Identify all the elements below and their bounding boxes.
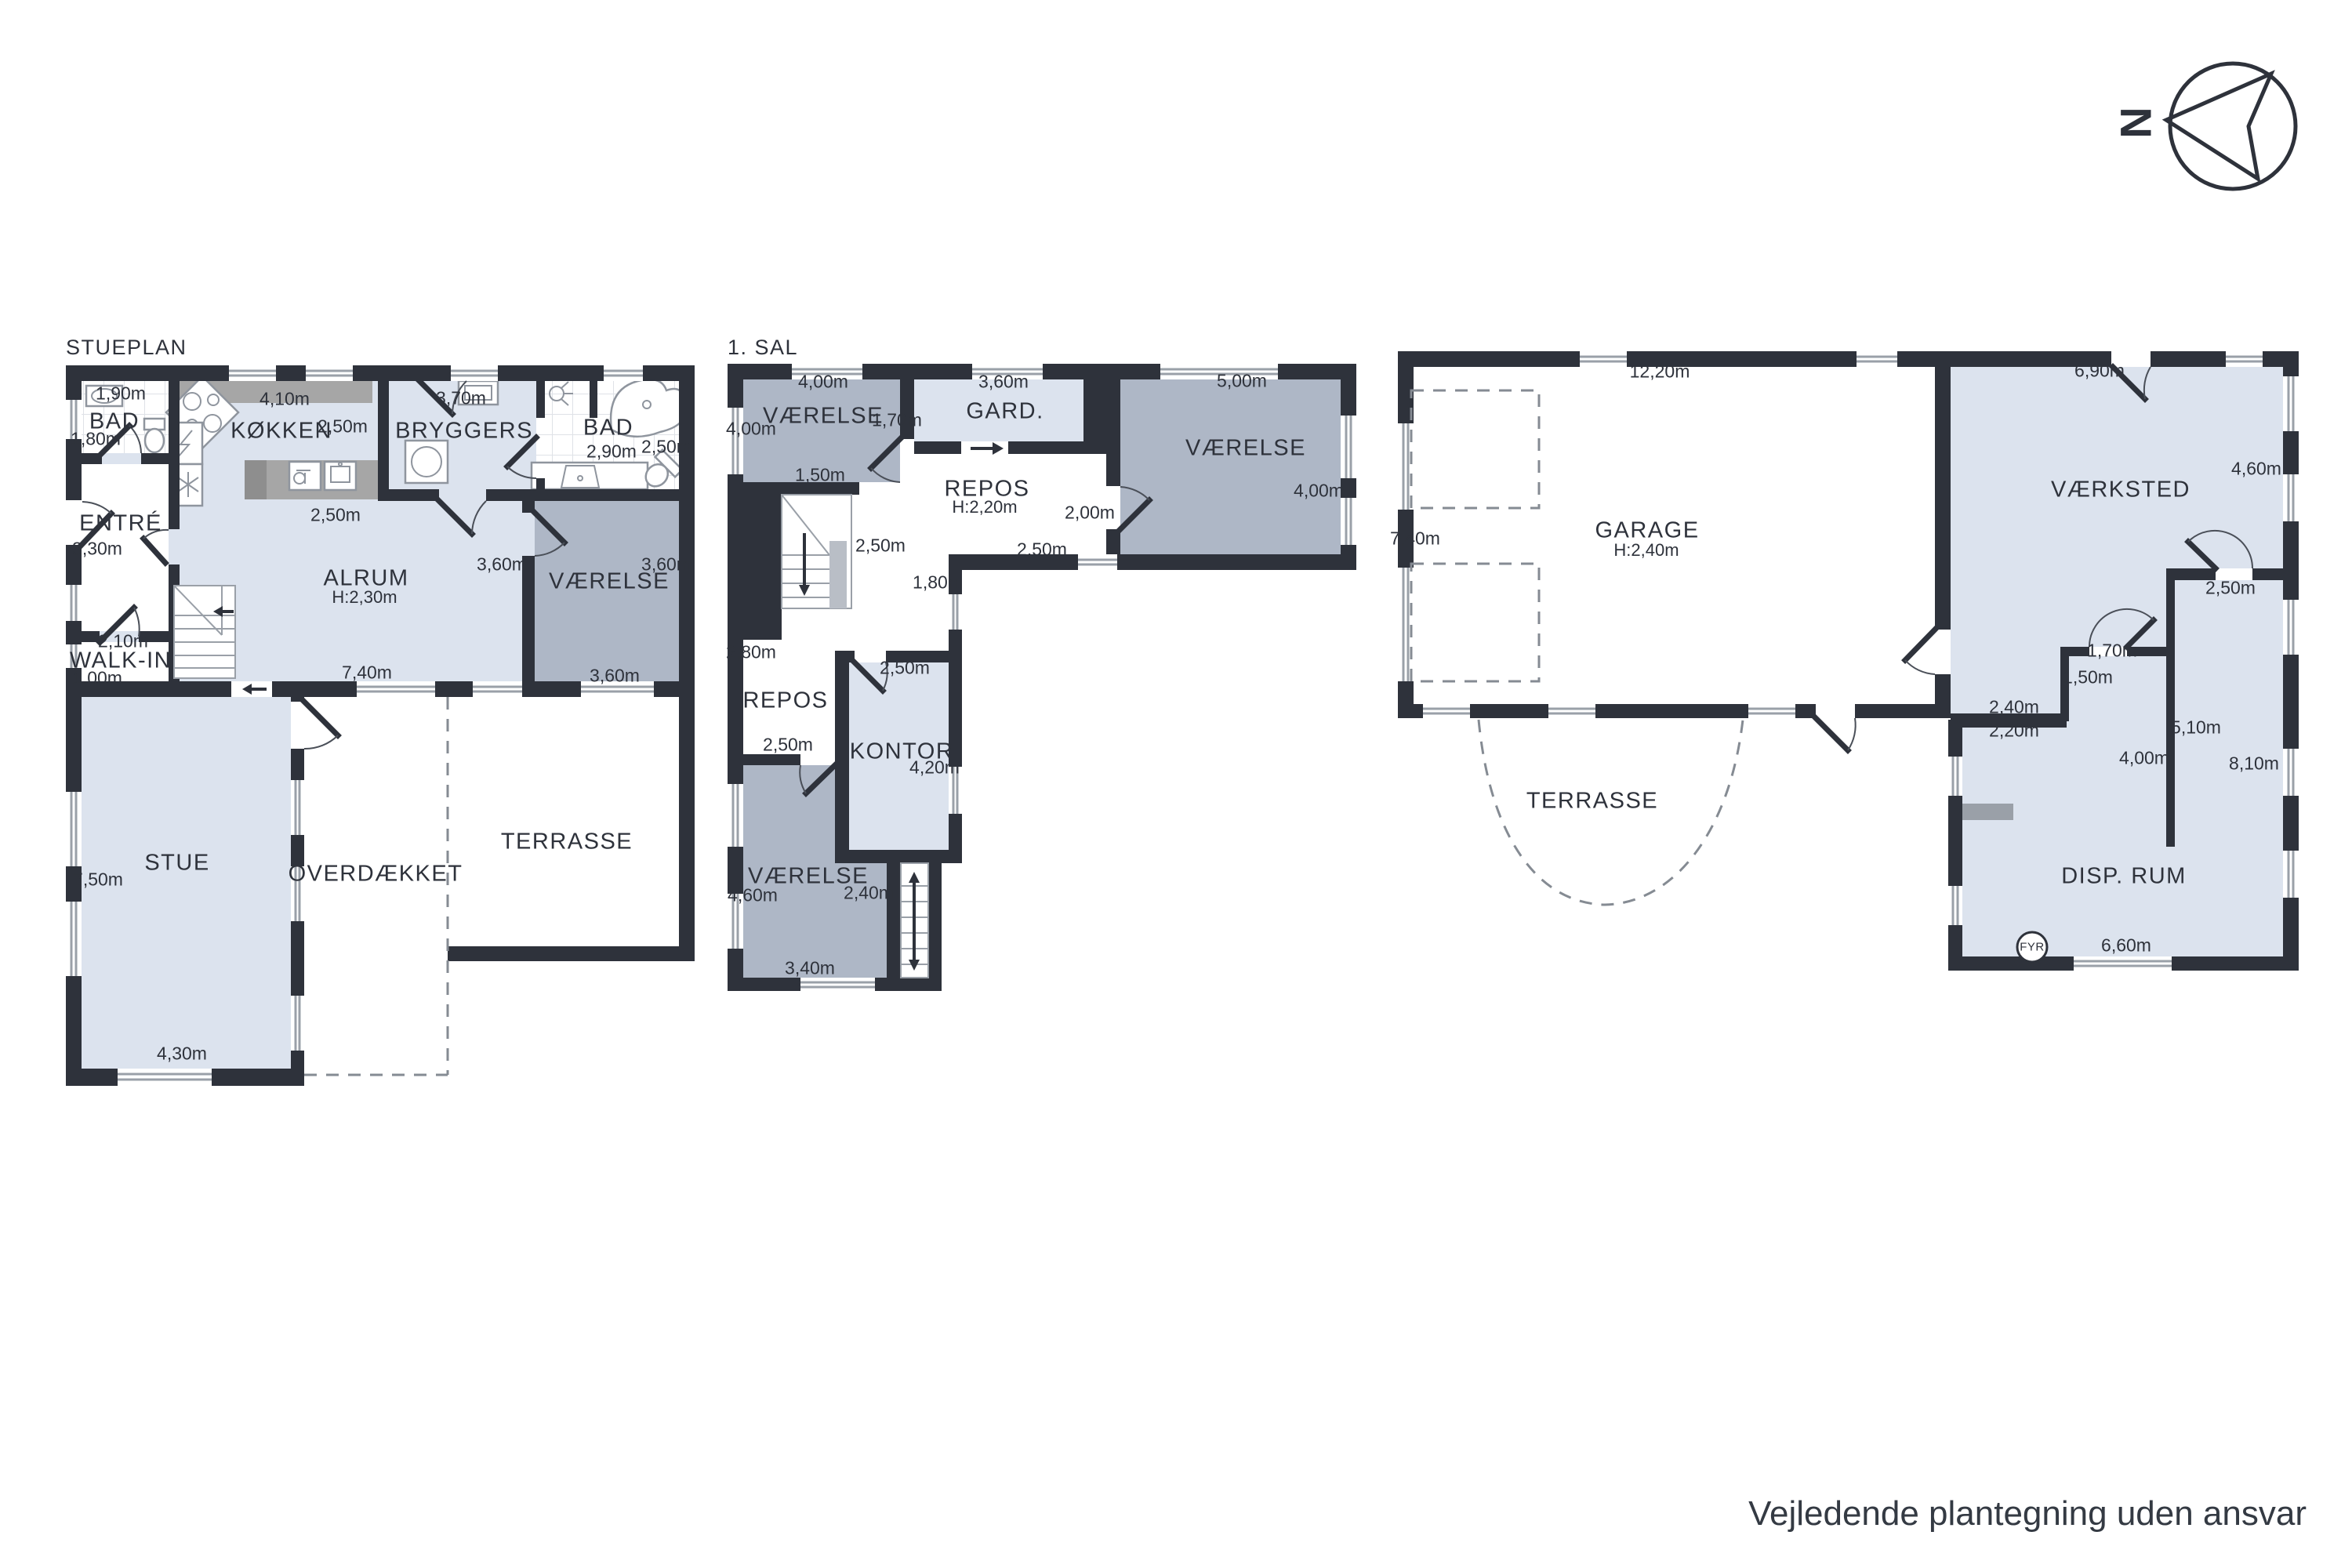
dimension-label: 3,40m bbox=[785, 958, 835, 979]
dimension-label: 2,50m bbox=[2205, 578, 2256, 599]
dimension-label: 3,60m bbox=[641, 554, 691, 575]
dimension-label: 1,80m bbox=[913, 572, 963, 593]
height-label: H:2,40m bbox=[1613, 540, 1679, 561]
room-label: ENTRÉ bbox=[79, 511, 162, 537]
dimension-label: 4,00m bbox=[2119, 748, 2169, 769]
dimension-label: 2,50m bbox=[855, 535, 906, 557]
dimension-label: 6,60m bbox=[2101, 935, 2151, 956]
dimension-label: 2,50m bbox=[318, 416, 368, 437]
dimension-label: 4,60m bbox=[728, 885, 778, 906]
dimension-label: 5,00m bbox=[1217, 371, 1267, 392]
dimension-label: 1,90m bbox=[96, 383, 146, 405]
fyr-label: FYR bbox=[2020, 941, 2045, 954]
height-label: H:2,30m bbox=[332, 587, 397, 608]
dimension-label: 2,80m bbox=[726, 642, 776, 663]
dimension-label: 4,00m bbox=[1294, 481, 1344, 502]
room-label: VÆRKSTED bbox=[2051, 477, 2190, 503]
garage-drawing: 12,20mGARAGEH:2,40m7,40m6,90mVÆRKSTED4,6… bbox=[1392, 345, 2321, 996]
room-label: BAD bbox=[583, 416, 633, 441]
room-label: TERRASSE bbox=[1526, 789, 1658, 815]
room-label: REPOS bbox=[742, 688, 828, 714]
dimension-label: 12,20m bbox=[1630, 361, 1690, 383]
dimension-label: 4,00m bbox=[798, 372, 848, 393]
floorplan-canvas: STUEPLAN bbox=[0, 0, 2352, 1568]
dimension-label: 4,20m bbox=[909, 757, 960, 779]
stueplan-labels: BAD1,90m1,80mKØKKEN4,10m2,50m2,50mBRYGGE… bbox=[63, 353, 706, 1098]
dimension-label: 6,90m bbox=[2074, 361, 2125, 382]
garage-labels: 12,20mGARAGEH:2,40m7,40m6,90mVÆRKSTED4,6… bbox=[1392, 345, 2321, 996]
dimension-label: 3,60m bbox=[978, 372, 1029, 393]
dimension-label: 1,00m bbox=[72, 668, 122, 689]
room-label: STUE bbox=[144, 851, 209, 877]
dimension-label: 4,00m bbox=[726, 419, 776, 440]
dimension-label: 1,70m bbox=[872, 410, 922, 431]
compass-icon bbox=[2150, 45, 2318, 214]
dimension-label: 3,60m bbox=[590, 666, 640, 687]
dimension-label: 7,40m bbox=[1390, 528, 1440, 550]
north-letter: N bbox=[2111, 107, 2161, 138]
dimension-label: 4,60m bbox=[2231, 459, 2281, 480]
dimension-label: 7,50m bbox=[73, 869, 123, 891]
dimension-label: 3,70m bbox=[436, 388, 486, 409]
dimension-label: 2,50m bbox=[641, 437, 691, 458]
room-label: TERRASSE bbox=[501, 829, 633, 855]
dimension-label: 7,40m bbox=[342, 662, 392, 684]
dimension-label: 5,10m bbox=[2171, 717, 2221, 739]
dimension-label: 1,50m bbox=[2063, 667, 2113, 688]
dimension-label: 4,30m bbox=[157, 1044, 207, 1065]
dimension-label: 2,20m bbox=[1989, 720, 2039, 742]
dimension-label: 3,30m bbox=[72, 539, 122, 560]
stueplan-drawing: BAD1,90m1,80mKØKKEN4,10m2,50m2,50mBRYGGE… bbox=[63, 353, 706, 1098]
dimension-label: 2,50m bbox=[880, 658, 930, 679]
room-label: BRYGGERS bbox=[395, 419, 533, 445]
dimension-label: 2,90m bbox=[586, 441, 637, 463]
dimension-label: 2,50m bbox=[1017, 539, 1067, 561]
room-label: OVERDÆKKET bbox=[289, 862, 463, 887]
dimension-label: 2,00m bbox=[1065, 503, 1115, 524]
room-label: VÆRELSE bbox=[1185, 436, 1306, 462]
height-label: H:2,20m bbox=[952, 497, 1017, 517]
compass bbox=[2150, 45, 2318, 214]
room-label: DISP. RUM bbox=[2061, 864, 2187, 890]
sal-drawing: VÆRELSE4,00m4,00m1,70m1,50mGARD.3,60mVÆR… bbox=[721, 345, 1372, 1004]
dimension-label: 8,10m bbox=[2229, 753, 2279, 775]
room-label: VÆRELSE bbox=[763, 404, 884, 430]
dimension-label: 2,50m bbox=[763, 735, 813, 756]
dimension-label: 3,60m bbox=[477, 554, 527, 575]
dimension-label: 2,40m bbox=[1989, 697, 2039, 718]
disclaimer-text: Vejledende plantegning uden ansvar bbox=[1748, 1494, 2307, 1534]
dimension-label: 2,40m bbox=[844, 883, 894, 904]
dimension-label: 2,50m bbox=[310, 505, 361, 526]
sal-labels: VÆRELSE4,00m4,00m1,70m1,50mGARD.3,60mVÆR… bbox=[721, 345, 1372, 1004]
dimension-label: 1,70m bbox=[2087, 641, 2137, 662]
dimension-label: 4,10m bbox=[260, 389, 310, 410]
room-label: GARD. bbox=[966, 399, 1044, 425]
dimension-label: 1,80m bbox=[71, 429, 121, 450]
dimension-label: 1,50m bbox=[795, 465, 845, 486]
